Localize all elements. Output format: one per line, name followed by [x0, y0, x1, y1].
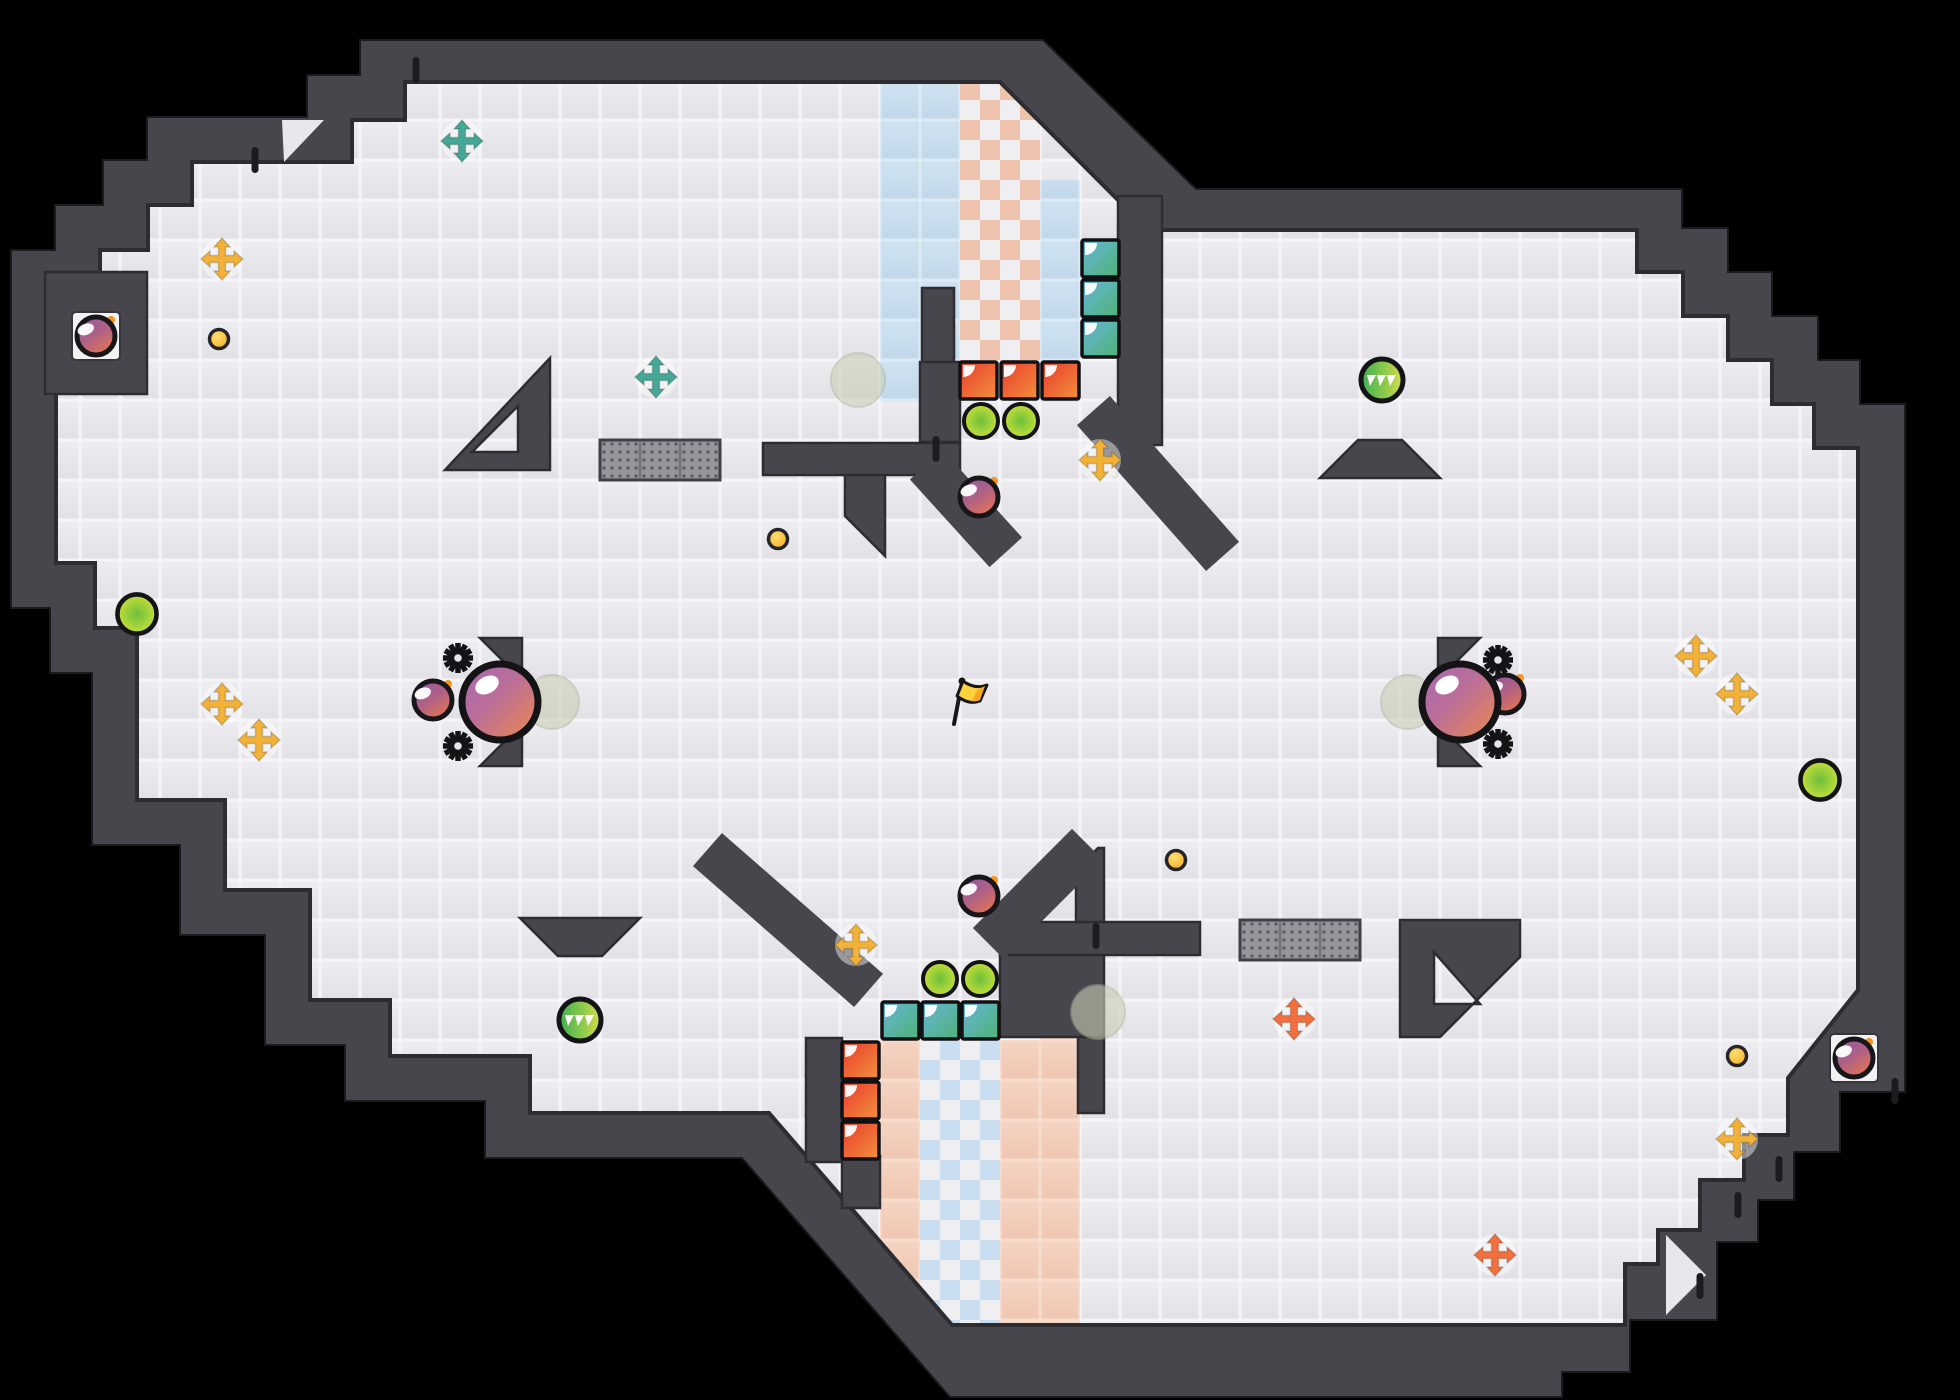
- wall-notch: [1776, 1156, 1783, 1182]
- boost-cross-icon[interactable]: [835, 924, 877, 966]
- bomb[interactable]: [959, 876, 998, 915]
- wall-notch: [1697, 1273, 1704, 1299]
- boost-cross-icon[interactable]: [1079, 439, 1121, 481]
- wall-notch: [1892, 1078, 1899, 1104]
- red-block[interactable]: [842, 1122, 879, 1159]
- red-block[interactable]: [842, 1082, 879, 1119]
- bomb[interactable]: [413, 680, 452, 719]
- team-peach-zone: [1000, 1040, 1080, 1325]
- red-block[interactable]: [1042, 362, 1079, 399]
- spawn-marker: [831, 353, 885, 407]
- teal-block[interactable]: [882, 1002, 919, 1039]
- wall-notch: [1735, 1192, 1742, 1218]
- boost-cross-icon[interactable]: [1675, 635, 1717, 677]
- teal-block[interactable]: [1082, 240, 1119, 277]
- coin-dot[interactable]: [1728, 1047, 1747, 1066]
- red-block[interactable]: [960, 362, 997, 399]
- coin-dot[interactable]: [1167, 851, 1186, 870]
- power-pellet[interactable]: [963, 962, 997, 996]
- power-pellet[interactable]: [923, 962, 957, 996]
- boost-cross-icon[interactable]: [635, 356, 677, 398]
- team-blue-zone: [880, 82, 920, 402]
- checker-zone-top: [960, 82, 1040, 362]
- teal-block[interactable]: [1082, 280, 1119, 317]
- boost-cross-icon[interactable]: [201, 238, 243, 280]
- boost-cross-icon[interactable]: [1474, 1234, 1516, 1276]
- wall-notch: [252, 147, 259, 173]
- power-pellet[interactable]: [1004, 404, 1038, 438]
- power-pellet[interactable]: [1800, 760, 1839, 799]
- spike-ball[interactable]: [559, 999, 601, 1041]
- coin-dot[interactable]: [769, 530, 788, 549]
- arena-map: [0, 0, 1960, 1400]
- boost-cross-icon[interactable]: [201, 683, 243, 725]
- wall-notch: [933, 436, 940, 462]
- player-ball[interactable]: [1422, 664, 1498, 740]
- grate-platform: [1240, 920, 1360, 960]
- coin-dot[interactable]: [210, 330, 229, 349]
- wall-notch: [413, 57, 420, 83]
- boost-cross-icon[interactable]: [238, 719, 280, 761]
- teal-block[interactable]: [962, 1002, 999, 1039]
- boost-cross-icon[interactable]: [1716, 673, 1758, 715]
- red-block[interactable]: [1001, 362, 1038, 399]
- teal-block[interactable]: [922, 1002, 959, 1039]
- spawn-marker: [1071, 985, 1125, 1039]
- spike-ball[interactable]: [1361, 359, 1403, 401]
- checker-zone-bottom: [920, 1040, 1000, 1325]
- boost-cross-icon[interactable]: [1716, 1118, 1758, 1160]
- red-block[interactable]: [842, 1042, 879, 1079]
- teal-block[interactable]: [1082, 320, 1119, 357]
- power-pellet[interactable]: [117, 594, 156, 633]
- power-pellet[interactable]: [964, 404, 998, 438]
- bomb[interactable]: [1834, 1038, 1873, 1077]
- bomb[interactable]: [76, 316, 115, 355]
- boost-cross-icon[interactable]: [1273, 998, 1315, 1040]
- wall-notch: [1093, 923, 1100, 949]
- grate-platform: [600, 440, 720, 480]
- bomb[interactable]: [959, 477, 998, 516]
- player-ball[interactable]: [462, 664, 538, 740]
- game-arena-screenshot: [0, 0, 1960, 1400]
- boost-cross-icon[interactable]: [441, 120, 483, 162]
